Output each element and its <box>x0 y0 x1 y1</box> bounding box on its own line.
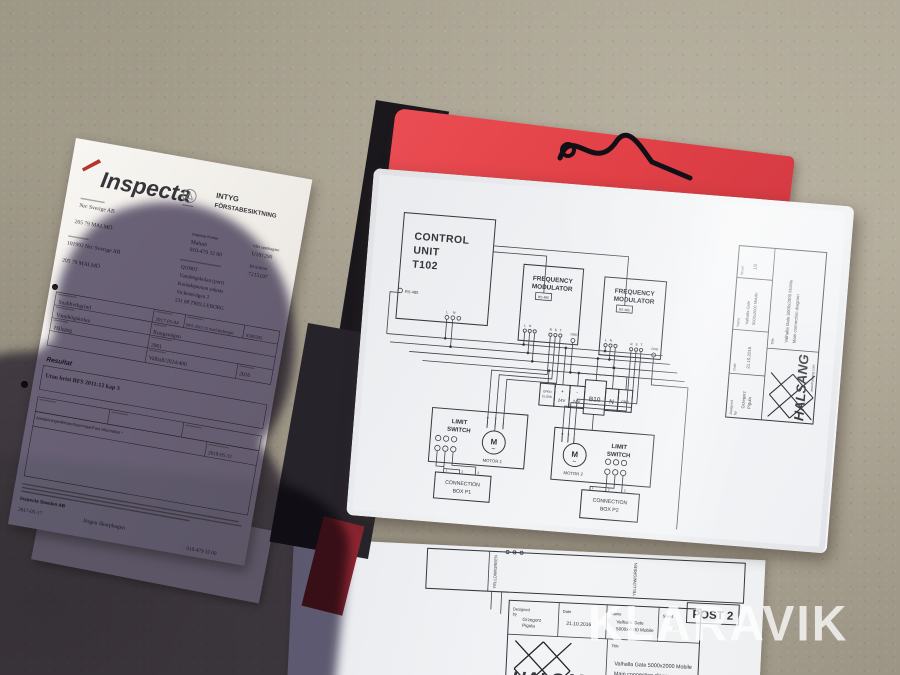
terminal-l: L <box>446 310 448 314</box>
inspecta-swoosh-icon <box>82 156 102 174</box>
by-label: by <box>733 411 737 415</box>
terminal-n: N <box>529 324 532 328</box>
terminal-r: R <box>630 342 633 346</box>
year: 2016 <box>238 371 250 379</box>
halsang-url: www.halsang.com <box>810 364 816 392</box>
rs485-label: RS 485 <box>538 295 549 300</box>
minus-label: - <box>576 390 578 396</box>
inspecta-logo: Inspecta <box>99 167 193 207</box>
title-line2: Main connection diagram <box>791 294 800 344</box>
doc-type-line2: FÖRSTABESIKTNING <box>214 202 277 220</box>
tick-3: 3 <box>477 471 479 475</box>
gnd-label: GND <box>651 347 659 352</box>
doc-type-line1: INTYG <box>216 191 240 204</box>
junction-dots <box>442 337 617 377</box>
designer-first: Grzegorz <box>522 617 542 623</box>
client-city: 205 79 MALMÖ <box>74 218 113 232</box>
site-city: 231 68 TRELLEBORG <box>174 297 224 312</box>
motor-tilde: ~ <box>572 458 577 465</box>
by-label: by <box>513 611 517 616</box>
limit-switch-2-box <box>551 427 654 487</box>
gnd-label: GND <box>570 332 578 337</box>
facility: Vannhögskolan <box>56 313 91 325</box>
wire-color-label: YELLOW/GREEN <box>632 562 639 596</box>
tick-3: 3 <box>624 489 626 493</box>
regulation: BFS 2011:12 med ändringar <box>185 322 234 335</box>
sign-date: 2017-05-17 <box>18 507 43 517</box>
designer-last: Pigula <box>522 623 535 629</box>
terminal-t: T <box>640 343 642 347</box>
rs485-label: RS 485 <box>405 289 419 295</box>
close-label: CLOSE <box>542 394 552 399</box>
title-block-1: Designed by Grzegorz Pigula Date 21.10.2… <box>726 246 827 424</box>
wire-color-label: YELLOW/GREEN <box>492 555 499 589</box>
inspecta-certificate: Inspecta INTYG FÖRSTABESIKTNING Nrc Sver… <box>8 138 312 566</box>
ref-no: 7215107 <box>248 271 269 280</box>
result-label: Resultat <box>46 356 73 368</box>
terminal-r: R <box>549 328 552 332</box>
punch-hole <box>21 381 28 388</box>
make: Hålsäng <box>53 324 73 334</box>
designer-last: Pigula <box>746 396 752 409</box>
title-line2: Main connection diagram <box>614 671 675 675</box>
elastic-cord <box>552 116 702 188</box>
terminal-s: S <box>635 343 638 347</box>
punch-hole <box>52 284 58 290</box>
box-p2-label: BOX P2 <box>600 506 619 513</box>
certificate-content: Inspecta INTYG FÖRSTABESIKTNING Nrc Sver… <box>8 138 312 566</box>
customer: 101992 Nrc Sverige AB <box>66 240 121 255</box>
terminal-n: N <box>453 311 456 315</box>
control-unit-line3: T102 <box>412 259 439 272</box>
terminal-s: S <box>555 328 558 332</box>
name-line1: Valhalla Gate <box>744 300 751 325</box>
switch-label: SWITCH <box>447 427 471 435</box>
signer-name: Jörgen Skarphagen <box>82 518 125 531</box>
date-label: Date <box>732 363 737 371</box>
photo-scene: Inspecta INTYG FÖRSTABESIKTNING Nrc Sver… <box>0 0 900 675</box>
open-label: OPEN <box>543 389 552 394</box>
customer-city: 205 79 MALMÖ <box>61 257 100 271</box>
order-no: U181290 <box>251 251 273 261</box>
limit-label: LIMIT <box>451 419 467 426</box>
sheet-value: 1/2 <box>752 263 758 270</box>
type: Valhall/2024/400 <box>148 355 187 368</box>
motor-1-label: MOTOR 1 <box>482 458 502 465</box>
sheet-label: Sheet <box>740 266 745 275</box>
date-label: Date <box>563 609 572 614</box>
motor-2-label: MOTOR 2 <box>563 470 583 477</box>
terminal-t: T <box>560 328 562 332</box>
client-name: Nrc Sverige AB <box>79 203 116 215</box>
object-value: Snabbvikgrind <box>58 300 92 312</box>
diagram-sheet-1: CONTROL UNIT T102 RS 485 L N FREQUENCY M… <box>353 174 846 546</box>
connection-label: CONNECTION <box>445 480 480 489</box>
terminal-strip <box>538 376 633 417</box>
control-unit-line1: CONTROL <box>414 231 470 246</box>
name-label: Name <box>736 317 741 326</box>
control-unit-line2: UNIT <box>413 245 440 258</box>
tick-2: 2 <box>461 469 463 473</box>
box-p1-label: BOX P1 <box>452 488 471 495</box>
street: Kungsvägen <box>153 330 182 341</box>
next-inspection-date: 2018-05-31 <box>207 450 232 460</box>
terminal-l: L <box>605 338 607 342</box>
signer-phone: 010-479 32 00 <box>186 546 217 557</box>
terminal-l: L <box>524 324 526 328</box>
24v-label: 24V <box>558 397 566 403</box>
halsang-logo: HALSANG <box>511 668 606 675</box>
motor-tilde: ~ <box>491 446 496 453</box>
serial: 2061 <box>150 342 162 350</box>
terminal-n: N <box>610 338 613 342</box>
connection-label: CONNECTION <box>592 498 627 507</box>
date-value: 21.10.2016 <box>745 346 752 369</box>
klaravik-watermark: KLARAVIK <box>588 596 848 653</box>
plus-label: + <box>561 389 564 395</box>
plastic-sleeve: CONTROL UNIT T102 RS 485 L N FREQUENCY M… <box>346 168 854 554</box>
site-code: Q10902 <box>180 264 198 273</box>
title-line1: Valhalla Gate 5000x2000 Mobile <box>614 661 692 671</box>
rs485-label: RS 485 <box>619 307 630 312</box>
limit-label: LIMIT <box>611 444 627 451</box>
office-phone: 010-479 32 00 <box>189 247 223 259</box>
switch-label: SWITCH <box>607 452 631 460</box>
result-value: Utan brist BFS 2011:12 kap 3 <box>45 373 120 392</box>
ref-label: Ert ordernr <box>249 264 268 271</box>
halsang-logo: HALSANG <box>791 353 811 421</box>
wiring-diagram: CONTROL UNIT T102 RS 485 L N FREQUENCY M… <box>353 174 846 546</box>
title-label: Title <box>770 338 774 345</box>
name-line2: 5000x2000 Mobile <box>751 291 759 325</box>
remarks-label: Anmärkningar/Brister/Noteringar/Fast inf… <box>36 415 124 435</box>
code: S583242 <box>245 334 263 342</box>
